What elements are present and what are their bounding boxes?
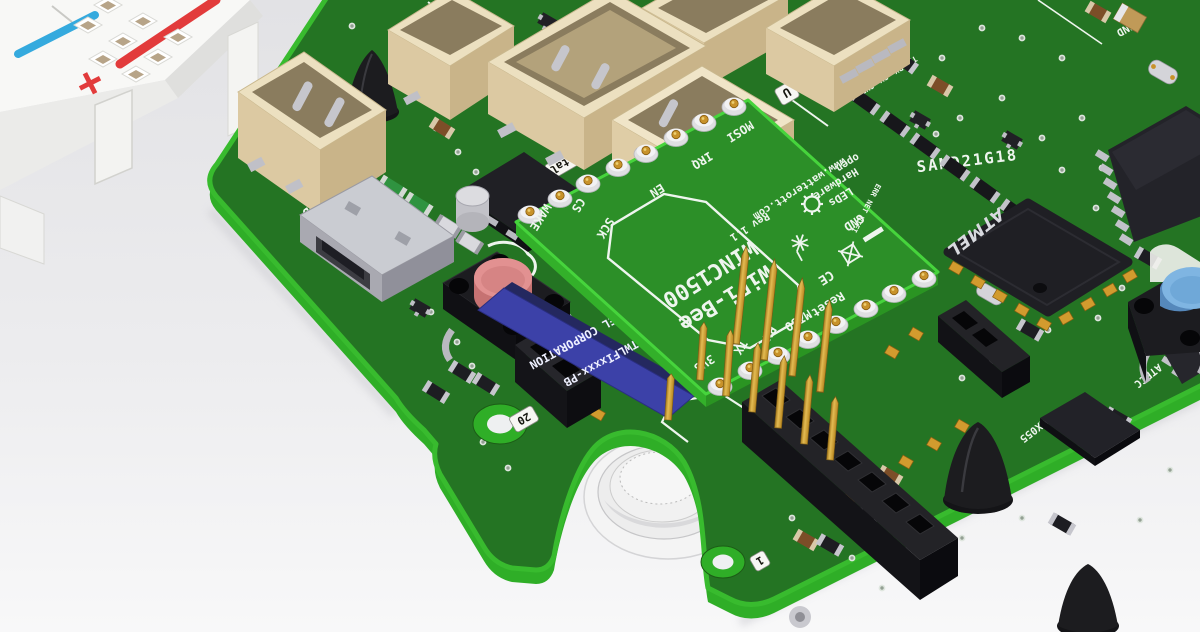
pcb-3d-render-viewport[interactable]: + [0,0,1200,632]
pcb-3d-scene[interactable]: + [0,0,1200,632]
mcu-pin1-dot [1033,283,1047,293]
metal-can-cap [456,186,489,232]
mounting-hole [701,546,745,578]
breadboard-slot [95,90,132,184]
edge-pad [789,606,811,628]
